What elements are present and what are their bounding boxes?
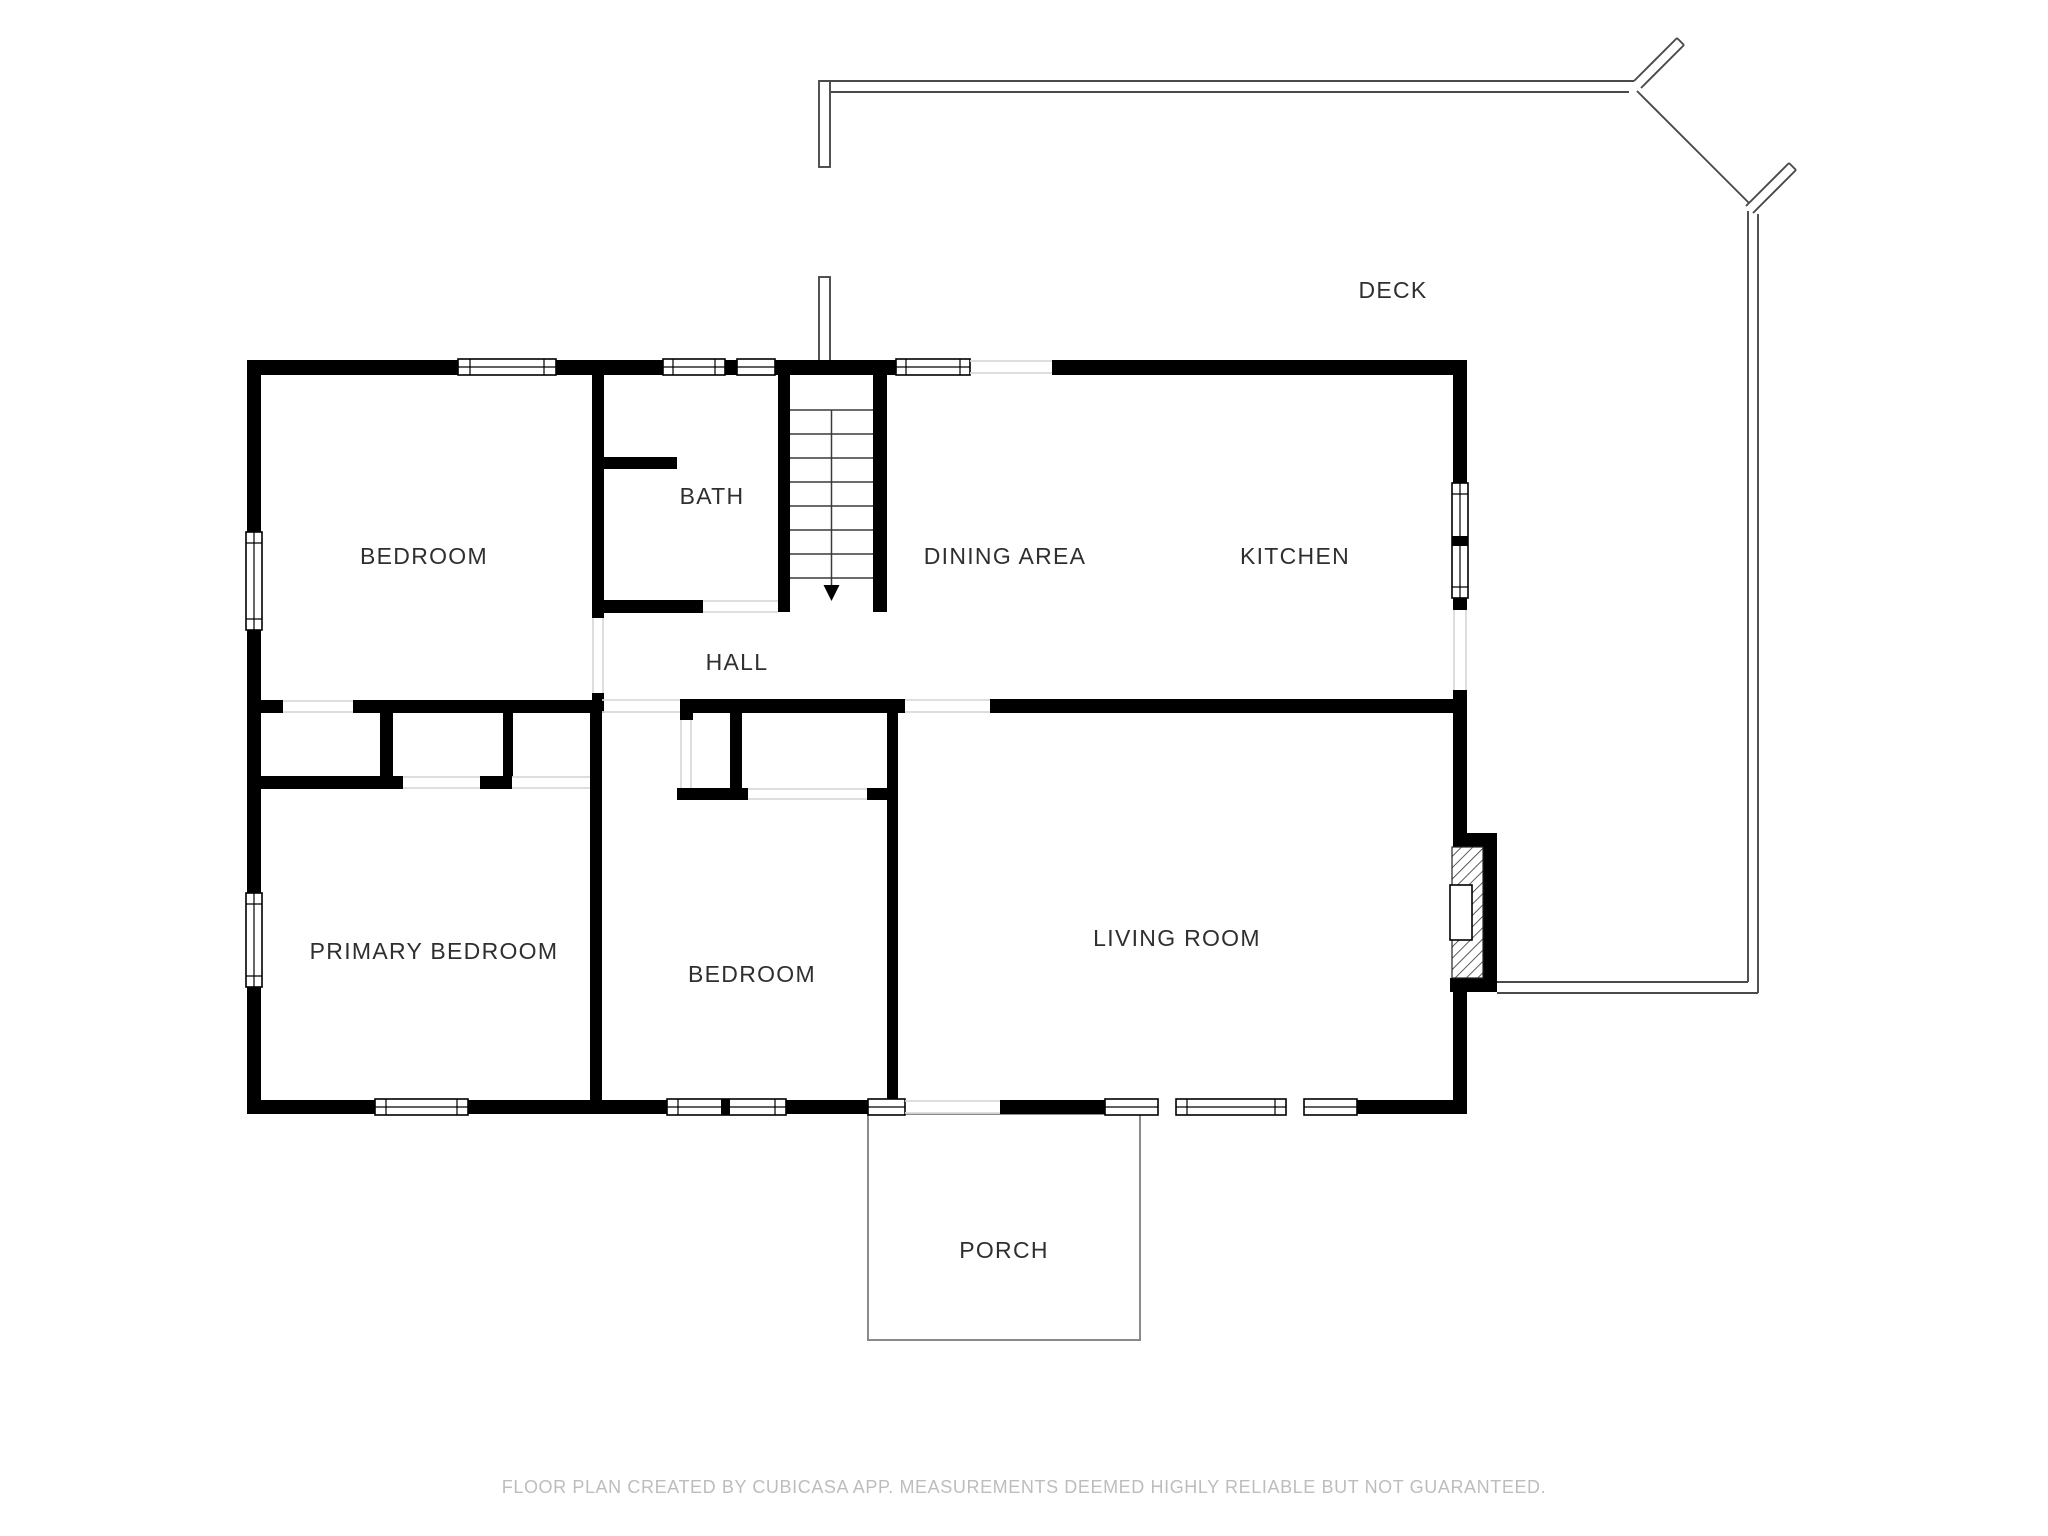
window	[458, 359, 556, 375]
wall-stair-east	[873, 374, 887, 612]
room-label-living-room: LIVING ROOM	[1093, 925, 1261, 951]
windows	[246, 359, 1468, 1115]
room-label-bedroom-top: BEDROOM	[360, 543, 488, 569]
wall-cap	[680, 699, 693, 720]
wall-segment	[786, 1100, 868, 1114]
wall-closet-a	[380, 713, 393, 777]
wall-segment	[247, 630, 261, 893]
bedroom-door-opening	[593, 618, 603, 693]
bedroom2-wide-opening	[748, 789, 867, 799]
floor-plan-page: BEDROOM BATH DINING AREA KITCHEN DECK HA…	[0, 0, 2048, 1536]
window	[1452, 483, 1468, 598]
wall-dining-living	[990, 699, 1467, 713]
porch-door-opening	[905, 1101, 1000, 1113]
room-label-primary-bedroom: PRIMARY BEDROOM	[310, 938, 559, 964]
deck-corner-stub-top	[1634, 38, 1684, 88]
wall-bath-stub	[604, 457, 677, 469]
deck-outline	[819, 38, 1796, 993]
fireplace	[1450, 833, 1497, 992]
room-label-dining-area: DINING AREA	[924, 543, 1087, 569]
wall-bedroom-south	[353, 700, 600, 713]
fireplace-wall-top	[1453, 833, 1497, 847]
room-label-hall: HALL	[706, 649, 769, 675]
wall-bath-south	[592, 600, 703, 613]
room-label-bath: BATH	[680, 483, 745, 509]
primary-door-opening	[512, 777, 590, 788]
window	[663, 359, 725, 375]
wall-segment	[468, 1100, 667, 1114]
exterior-walls	[247, 360, 1467, 1114]
wall-segment	[1453, 992, 1467, 1114]
wall-segment	[1000, 1100, 1105, 1114]
room-label-deck: DECK	[1358, 277, 1427, 303]
wall-segment	[556, 360, 663, 375]
room-label-bedroom-bottom: BEDROOM	[688, 961, 816, 987]
window	[868, 1099, 905, 1115]
wall-primary-bedroom2	[590, 713, 602, 1100]
stair-down-arrow-icon	[824, 585, 840, 601]
wall-closet-b	[503, 700, 513, 777]
wall-segment	[247, 360, 261, 532]
wall-bedroom-south	[247, 700, 283, 713]
wall-bedroom2-closet	[730, 713, 742, 800]
bedroom2-door-opening	[602, 700, 680, 712]
firebox	[1450, 885, 1472, 940]
room-label-kitchen: KITCHEN	[1240, 543, 1350, 569]
fireplace-wall-right	[1483, 847, 1497, 992]
bath-door-opening	[703, 601, 778, 612]
window	[375, 1099, 468, 1115]
fireplace-wall-bottom	[1450, 978, 1497, 992]
porch-outline	[868, 1114, 1140, 1340]
wall-segment	[1453, 360, 1467, 483]
bedroom-closet-opening	[283, 701, 353, 712]
deck-diagonal-edge	[1637, 91, 1749, 203]
wall-segment	[247, 360, 458, 375]
footer-disclaimer: FLOOR PLAN CREATED BY CUBICASA APP. MEAS…	[502, 1477, 1547, 1497]
kitchen-deck-opening	[1454, 610, 1466, 690]
floor-plan-drawing: BEDROOM BATH DINING AREA KITCHEN DECK HA…	[0, 0, 2048, 1536]
wall-segment	[247, 987, 261, 1114]
wall-closet-south	[247, 776, 403, 789]
hall-dining-opening	[905, 700, 990, 712]
wall-segment	[1453, 598, 1467, 610]
window	[896, 359, 970, 375]
window	[667, 1099, 786, 1115]
room-label-porch: PORCH	[959, 1237, 1049, 1263]
window	[246, 893, 262, 987]
wall-bedroom2-closet-south	[677, 788, 748, 800]
deck-door-opening	[970, 361, 1052, 373]
wall-segment	[775, 360, 896, 375]
wall-hall-south	[680, 699, 905, 713]
wall-bedroom2-living	[887, 699, 898, 1100]
primary-closet-opening	[403, 777, 480, 788]
bedroom2-closet-door	[681, 720, 691, 788]
deck-corner-stub-right	[1746, 163, 1796, 213]
window	[1105, 1099, 1158, 1115]
wall-closet-south	[480, 776, 512, 789]
wall-bedroom-bath	[592, 374, 604, 618]
window	[737, 359, 775, 375]
wall-segment	[1357, 1100, 1467, 1114]
window	[1304, 1099, 1357, 1115]
deck-left-rail-lower	[819, 277, 830, 361]
wall-stair-west	[778, 374, 790, 612]
staircase	[790, 410, 873, 601]
deck-left-rail-upper	[819, 81, 830, 167]
window	[246, 532, 262, 630]
wall-segment	[247, 1100, 375, 1114]
wall-segment	[725, 360, 737, 375]
window	[1176, 1099, 1286, 1115]
interior-walls	[247, 374, 1467, 1100]
wall-segment	[1052, 360, 1467, 375]
